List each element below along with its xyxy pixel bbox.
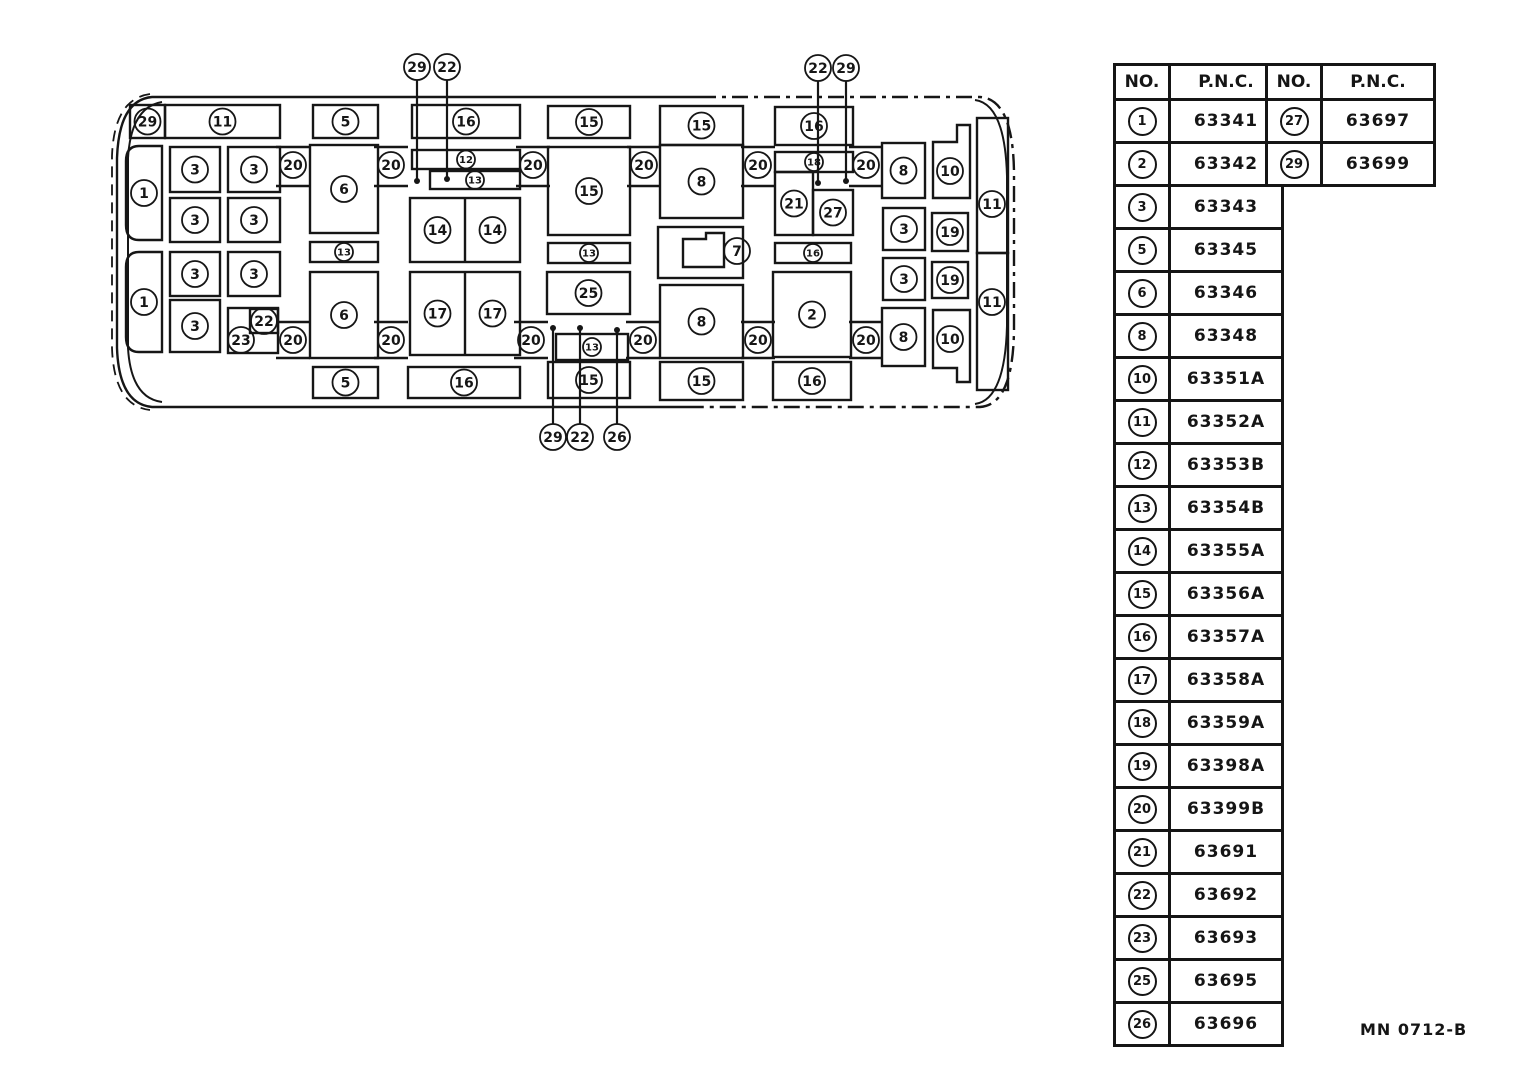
pnc-cell: 63699 [1322,143,1435,186]
circled-number-text: 23 [231,333,250,349]
circled-number-text: 14 [483,223,503,239]
table-row: 1363354B [1115,487,1283,530]
circled-number-text: 20 [283,158,303,174]
table-row: 1863359A [1115,702,1283,745]
table-row: 1563356A [1115,573,1283,616]
no-cell: 2 [1115,143,1170,186]
table-row: 2363693 [1115,917,1283,960]
figure-code: MN 0712-B [1360,1020,1467,1039]
circled-number-text: 20 [748,333,768,349]
circled-number-text: 1 [139,186,149,202]
no-cell: 5 [1115,229,1170,272]
pnc-cell: 63691 [1170,831,1283,874]
circled-number-text: 19 [940,225,959,241]
circled-number-text: 3 [190,267,200,283]
circled-number-text: 2 [807,308,817,324]
pnc-cell: 63695 [1170,960,1283,1003]
no-cell: 14 [1115,530,1170,573]
circled-number-text: 3 [190,319,200,335]
no-cell: 22 [1115,874,1170,917]
table-row: 2163691 [1115,831,1283,874]
table-row: 263342 [1115,143,1283,186]
pnc-cell: 63357A [1170,616,1283,659]
circled-number: 16 [1128,623,1157,652]
no-cell: 19 [1115,745,1170,788]
circled-number-text: 13 [337,248,351,259]
circled-number-text: 5 [341,115,351,131]
circled-number-text: 22 [570,430,589,446]
table-header: NO. [1115,65,1170,100]
circled-number-text: 17 [428,307,447,323]
no-cell: 18 [1115,702,1170,745]
circled-number-text: 3 [899,222,909,238]
circled-number-text: 20 [381,158,401,174]
circled-number: 12 [1128,451,1157,480]
panel-polygon [683,233,724,267]
no-cell: 6 [1115,272,1170,315]
leader-dot [815,180,821,186]
circled-number-text: 16 [806,249,820,260]
circled-number-text: 13 [468,176,482,187]
table-row: 563345 [1115,229,1283,272]
pnc-cell: 63352A [1170,401,1283,444]
pnc-cell: 63345 [1170,229,1283,272]
circled-number-text: 16 [802,374,821,390]
circled-number: 20 [1128,795,1157,824]
circled-number-text: 20 [521,333,541,349]
no-cell: 13 [1115,487,1170,530]
circled-number-text: 3 [190,213,200,229]
no-cell: 23 [1115,917,1170,960]
circled-number-text: 16 [456,115,475,131]
leader-dot [577,325,583,331]
table-row: 1163352A [1115,401,1283,444]
circled-number: 5 [1128,236,1157,265]
panel-box [977,253,1008,390]
circled-number: 21 [1128,838,1157,867]
pnc-cell: 63346 [1170,272,1283,315]
circled-number-text: 20 [634,158,654,174]
pnc-cell: 63398A [1170,745,1283,788]
circled-number: 18 [1128,709,1157,738]
leader-dot [843,178,849,184]
circled-number-text: 8 [697,175,707,191]
no-cell: 10 [1115,358,1170,401]
circled-number-text: 6 [339,182,349,198]
pnc-cell: 63692 [1170,874,1283,917]
no-cell: 26 [1115,1003,1170,1046]
no-cell: 3 [1115,186,1170,229]
pnc-cell: 63343 [1170,186,1283,229]
table-row: 2663696 [1115,1003,1283,1046]
circled-number-text: 10 [940,332,960,348]
panel-polygon [933,125,970,198]
pnc-cell: 63353B [1170,444,1283,487]
no-cell: 1 [1115,100,1170,143]
circled-number-text: 26 [607,430,626,446]
circled-number: 3 [1128,193,1157,222]
circled-number-text: 16 [454,376,473,392]
pnc-cell: 63359A [1170,702,1283,745]
circled-number-text: 22 [437,60,456,76]
no-cell: 11 [1115,401,1170,444]
circled-number-text: 17 [483,307,502,323]
pnc-table-right: NO.P.N.C.27636972963699 [1265,63,1436,187]
table-row: 2063399B [1115,788,1283,831]
table-header: P.N.C. [1322,65,1435,100]
pnc-cell: 63697 [1322,100,1435,143]
no-cell: 25 [1115,960,1170,1003]
circled-number-text: 20 [283,333,303,349]
pnc-cell: 63356A [1170,573,1283,616]
table-row: 163341 [1115,100,1283,143]
circled-number-text: 12 [459,155,473,166]
circled-number-text: 29 [543,430,562,446]
table-row: 1263353B [1115,444,1283,487]
pnc-cell: 63351A [1170,358,1283,401]
circled-number-text: 15 [692,119,711,135]
table-row: 2963699 [1267,143,1435,186]
circled-number-text: 27 [823,206,842,222]
circled-number: 10 [1128,365,1157,394]
circled-number-text: 22 [254,314,273,330]
no-cell: 8 [1115,315,1170,358]
leader-dot [414,178,420,184]
panel-box [658,227,743,278]
table-row: 2763697 [1267,100,1435,143]
circled-number-text: 13 [582,249,596,260]
circled-number: 2 [1128,150,1157,179]
circled-number-text: 8 [899,330,909,346]
circled-number: 29 [1280,150,1309,179]
circled-number: 26 [1128,1010,1157,1039]
circled-number-text: 15 [579,373,598,389]
catalog-page: 2020202020202020202020202911516151516113… [0,0,1536,1080]
no-cell: 12 [1115,444,1170,487]
leader-dot [614,327,620,333]
circled-number-text: 6 [339,308,349,324]
circled-number-text: 29 [138,115,157,131]
circled-number: 19 [1128,752,1157,781]
no-cell: 16 [1115,616,1170,659]
circled-number: 17 [1128,666,1157,695]
circled-number-text: 20 [381,333,401,349]
circled-number-text: 20 [856,333,876,349]
circled-number-text: 11 [982,197,1001,213]
circled-number: 1 [1128,107,1157,136]
circled-number: 22 [1128,881,1157,910]
pnc-cell: 63693 [1170,917,1283,960]
leader-dot [550,325,556,331]
circled-number-text: 3 [249,213,259,229]
table-header: NO. [1267,65,1322,100]
circled-number: 13 [1128,494,1157,523]
no-cell: 15 [1115,573,1170,616]
pnc-cell: 63358A [1170,659,1283,702]
circled-number-text: 21 [784,197,803,213]
circled-number-text: 20 [748,158,768,174]
table-row: 2563695 [1115,960,1283,1003]
leader-dot [444,176,450,182]
circled-number: 6 [1128,279,1157,308]
circled-number-text: 19 [940,273,959,289]
circled-number-text: 20 [633,333,653,349]
pnc-cell: 63696 [1170,1003,1283,1046]
circled-number-text: 3 [190,163,200,179]
circled-number-text: 11 [982,295,1001,311]
circled-number-text: 3 [899,272,909,288]
circled-number-text: 25 [579,286,598,302]
circled-number-text: 14 [428,223,448,239]
circled-number-text: 13 [585,343,599,354]
roof-parts-diagram: 2020202020202020202020202911516151516113… [0,0,1060,480]
pnc-cell: 63355A [1170,530,1283,573]
no-cell: 29 [1267,143,1322,186]
circled-number-text: 15 [579,115,598,131]
circled-number-text: 16 [804,119,823,135]
circled-number-text: 10 [940,164,960,180]
circled-number-text: 15 [692,374,711,390]
circled-number: 11 [1128,408,1157,437]
pnc-table-left: NO.P.N.C.1633412633423633435633456633468… [1113,63,1284,1047]
no-cell: 17 [1115,659,1170,702]
table-row: 1963398A [1115,745,1283,788]
circled-number: 8 [1128,322,1157,351]
table-row: 1763358A [1115,659,1283,702]
pnc-cell: 63399B [1170,788,1283,831]
circled-number-text: 3 [249,163,259,179]
circled-number-text: 22 [808,61,827,77]
table-row: 1063351A [1115,358,1283,401]
circled-number-text: 8 [899,164,909,180]
circled-number-text: 15 [579,184,598,200]
circled-number: 23 [1128,924,1157,953]
table-row: 1663357A [1115,616,1283,659]
no-cell: 21 [1115,831,1170,874]
circled-number: 14 [1128,537,1157,566]
table-row: 663346 [1115,272,1283,315]
circled-number-text: 8 [697,315,707,331]
circled-number-text: 20 [856,158,876,174]
no-cell: 27 [1267,100,1322,143]
circled-number-text: 7 [732,244,742,260]
table-row: 1463355A [1115,530,1283,573]
circled-number-text: 11 [213,115,232,131]
pnc-cell: 63354B [1170,487,1283,530]
circled-number-text: 29 [836,61,855,77]
circled-number-text: 29 [407,60,426,76]
table-row: 363343 [1115,186,1283,229]
circled-number-text: 1 [139,295,149,311]
circled-number: 25 [1128,967,1157,996]
table-row: 2263692 [1115,874,1283,917]
circled-number: 27 [1280,107,1309,136]
circled-number: 15 [1128,580,1157,609]
circled-number-text: 3 [249,267,259,283]
table-row: 863348 [1115,315,1283,358]
no-cell: 20 [1115,788,1170,831]
circled-number-text: 20 [523,158,543,174]
pnc-cell: 63348 [1170,315,1283,358]
circled-number-text: 5 [341,376,351,392]
